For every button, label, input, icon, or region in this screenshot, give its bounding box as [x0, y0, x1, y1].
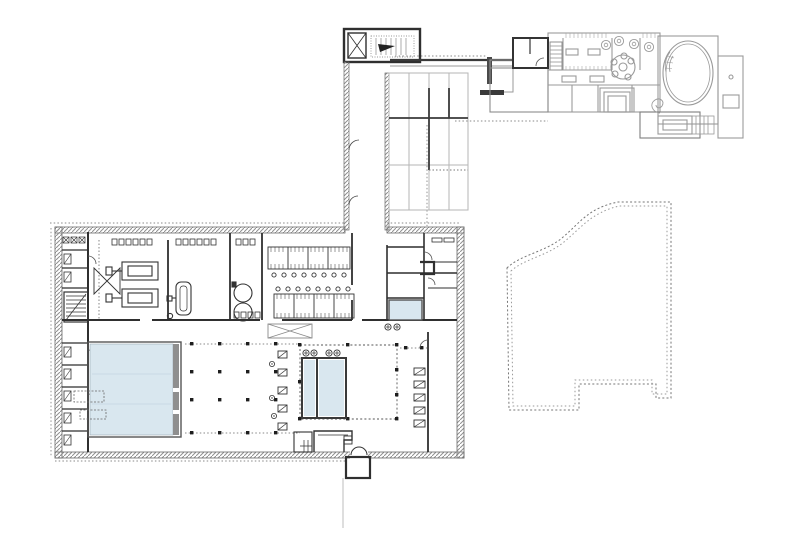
shower-icon [394, 324, 400, 330]
garden-outline [507, 202, 671, 410]
spiral-stair [652, 99, 663, 113]
wall-lockers [414, 332, 428, 452]
pool-ladder-icon [173, 410, 179, 414]
locker-benches [269, 351, 287, 430]
stair-left [64, 292, 88, 322]
floor-plan-canvas [0, 0, 800, 533]
corridor-left-wall [344, 62, 349, 230]
toilet-icon [64, 347, 71, 357]
table [663, 120, 687, 130]
changing-benches [268, 247, 354, 318]
door-arc [88, 256, 96, 264]
garden-outline-outer [507, 202, 671, 410]
shower-cell-icon [63, 237, 69, 243]
reception [294, 431, 352, 452]
pool-ladder-icon [173, 388, 179, 392]
toilet-icon [64, 369, 71, 379]
teaching-pools [302, 350, 346, 418]
plant-icon [644, 42, 653, 51]
shower-icon [326, 350, 332, 356]
toilet-icon [64, 413, 71, 423]
wing-link-room [513, 38, 548, 68]
door-arc [424, 252, 432, 260]
door-arc [428, 278, 435, 285]
glazed-court [389, 73, 468, 210]
toilet-icon [64, 435, 71, 445]
door-arc [349, 196, 358, 205]
toilet-icon [64, 391, 71, 401]
plant-icon [601, 40, 610, 49]
shower-icon [334, 350, 340, 356]
shower-icon [385, 324, 391, 330]
shower-cell-icon [71, 237, 77, 243]
plant-icon [614, 36, 623, 45]
filter-room [232, 282, 252, 321]
main-pool [74, 342, 181, 437]
floor-plan-svg [0, 0, 800, 533]
stair-below-oval [692, 116, 714, 134]
toilet-icon [64, 254, 71, 264]
shower-icon [311, 350, 317, 356]
double-swing-door [94, 268, 120, 294]
historic-wing [490, 33, 743, 138]
tank-room [167, 282, 191, 319]
garden-outline-inner [511, 206, 667, 406]
table [562, 76, 576, 82]
shower-cell-icon [79, 237, 85, 243]
window-hatch [566, 33, 655, 70]
machine-room [106, 262, 158, 307]
door-arc [349, 140, 359, 150]
nested-stair [600, 88, 634, 112]
shower-icon [303, 350, 309, 356]
stair-top [371, 36, 414, 57]
table [588, 49, 600, 55]
corridor-right-wall [385, 73, 389, 230]
reception-desk [314, 431, 352, 452]
door-arc [536, 58, 544, 66]
locker-row [112, 239, 260, 318]
oval-hall [663, 41, 713, 105]
round-table [611, 53, 635, 80]
table [723, 95, 739, 108]
corridor-link [344, 29, 513, 230]
plant-icon [629, 39, 638, 48]
wing-stair [550, 42, 562, 70]
fixture [729, 75, 733, 79]
toilet-icon [64, 272, 71, 282]
ramp [268, 324, 312, 338]
plunge-pool [389, 300, 422, 320]
table [566, 49, 578, 55]
table [590, 76, 604, 82]
